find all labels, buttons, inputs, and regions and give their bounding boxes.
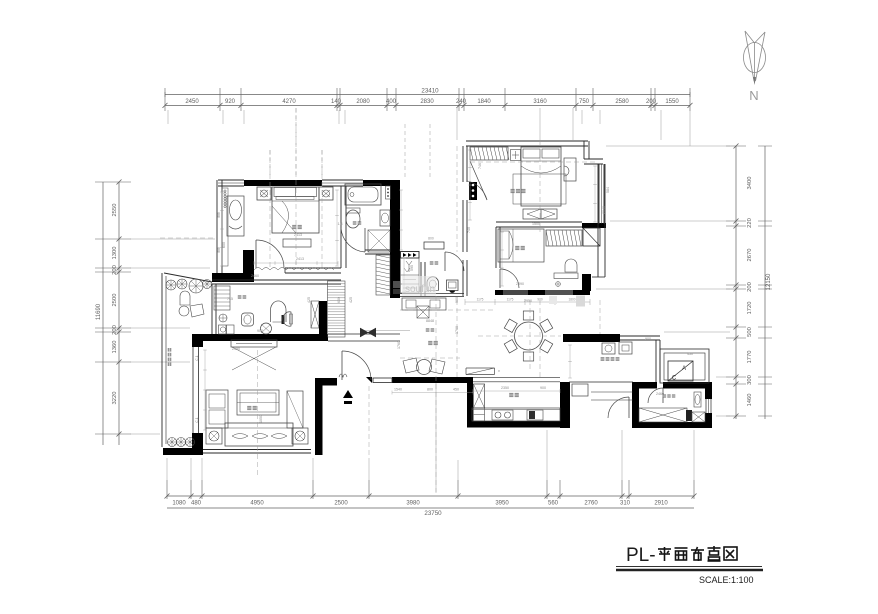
svg-text:900: 900	[455, 297, 459, 303]
svg-text:1300: 1300	[112, 247, 118, 260]
svg-text:480: 480	[191, 501, 202, 507]
svg-text:450: 450	[453, 388, 459, 392]
svg-text:800: 800	[427, 388, 433, 392]
svg-text:2500: 2500	[112, 294, 118, 307]
svg-text:900: 900	[645, 337, 651, 341]
svg-text:888: 888	[217, 212, 221, 218]
svg-text:2580: 2580	[615, 99, 629, 105]
svg-text:3160: 3160	[533, 99, 547, 105]
svg-text:1800: 1800	[568, 298, 575, 302]
svg-text:888: 888	[217, 247, 221, 253]
svg-text:200: 200	[646, 99, 657, 105]
svg-text:2830: 2830	[420, 99, 434, 105]
svg-text:2500: 2500	[334, 501, 348, 507]
svg-text:1460: 1460	[747, 394, 753, 407]
svg-text:3980: 3980	[406, 501, 420, 507]
svg-text:PL-: PL-	[626, 545, 656, 566]
svg-text:746: 746	[478, 163, 482, 169]
svg-text:425: 425	[349, 297, 353, 303]
svg-text:900: 900	[257, 329, 263, 333]
svg-text:600: 600	[337, 297, 341, 303]
svg-text:1760: 1760	[455, 326, 459, 334]
svg-text:8848: 8848	[426, 319, 434, 323]
svg-text:2450: 2450	[185, 99, 199, 105]
svg-text:750: 750	[579, 99, 590, 105]
svg-text:1540: 1540	[394, 388, 402, 392]
svg-text:1720: 1720	[747, 302, 753, 315]
svg-text:2670: 2670	[747, 249, 753, 262]
svg-text:2910: 2910	[654, 501, 668, 507]
svg-text:4270: 4270	[282, 99, 296, 105]
svg-text:2413: 2413	[296, 257, 304, 261]
svg-text:2760: 2760	[584, 501, 598, 507]
svg-text:425: 425	[307, 297, 311, 303]
svg-text:2190: 2190	[232, 347, 240, 351]
svg-text:2350: 2350	[501, 386, 509, 390]
svg-text:595: 595	[410, 265, 414, 271]
svg-text:2040: 2040	[602, 206, 606, 214]
svg-text:1550: 1550	[665, 99, 679, 105]
svg-text:C-1: C-1	[195, 417, 199, 422]
svg-text:4950: 4950	[250, 501, 264, 507]
svg-text:220: 220	[747, 218, 753, 228]
svg-text:140: 140	[331, 99, 342, 105]
svg-text:2460: 2460	[656, 392, 664, 396]
svg-text:1500: 1500	[532, 222, 540, 226]
svg-text:soufun: soufun	[405, 284, 435, 295]
svg-text:200: 200	[747, 282, 753, 292]
svg-text:450: 450	[687, 352, 693, 356]
svg-text:745: 745	[227, 297, 233, 301]
svg-text:1.8: 1.8	[338, 222, 343, 226]
svg-text:SCALE:1:100: SCALE:1:100	[699, 575, 754, 585]
svg-text:560: 560	[548, 501, 559, 507]
svg-text:8: 8	[498, 369, 500, 373]
svg-text:1360: 1360	[112, 341, 118, 354]
svg-text:23410: 23410	[421, 88, 439, 95]
svg-text:800: 800	[222, 242, 226, 248]
svg-text:2390: 2390	[516, 282, 524, 286]
svg-text:1760: 1760	[397, 341, 401, 349]
svg-text:1175: 1175	[477, 298, 484, 302]
svg-text:12150: 12150	[766, 273, 772, 290]
svg-text:1175: 1175	[507, 298, 514, 302]
svg-text:1050: 1050	[259, 415, 263, 423]
svg-text:3950: 3950	[495, 501, 509, 507]
svg-text:800: 800	[428, 237, 434, 241]
svg-text:C-1: C-1	[195, 355, 199, 360]
svg-text:900: 900	[540, 386, 546, 390]
svg-text:11690: 11690	[96, 303, 102, 320]
svg-text:1770: 1770	[747, 351, 753, 364]
svg-text:2413: 2413	[294, 233, 302, 237]
svg-text:2550: 2550	[112, 204, 118, 217]
svg-text:400: 400	[386, 99, 397, 105]
svg-text:300: 300	[747, 375, 753, 385]
svg-text:584: 584	[606, 187, 610, 193]
svg-text:1080: 1080	[172, 501, 186, 507]
svg-text:200: 200	[112, 265, 118, 275]
svg-text:1840: 1840	[477, 99, 491, 105]
svg-text:920: 920	[225, 99, 236, 105]
svg-text:23750: 23750	[424, 510, 442, 517]
svg-text:240: 240	[456, 99, 467, 105]
svg-text:310: 310	[620, 501, 631, 507]
svg-text:3220: 3220	[112, 392, 118, 405]
svg-text:N: N	[749, 88, 758, 103]
svg-text:500: 500	[747, 327, 753, 337]
svg-text:C: C	[672, 376, 677, 382]
svg-text:2080: 2080	[356, 99, 370, 105]
svg-text:200: 200	[112, 325, 118, 335]
svg-text:2460: 2460	[251, 274, 259, 278]
svg-text:3400: 3400	[747, 177, 753, 190]
svg-text:A: A	[682, 366, 686, 372]
svg-text:740: 740	[467, 227, 471, 233]
svg-text:900: 900	[537, 298, 543, 302]
